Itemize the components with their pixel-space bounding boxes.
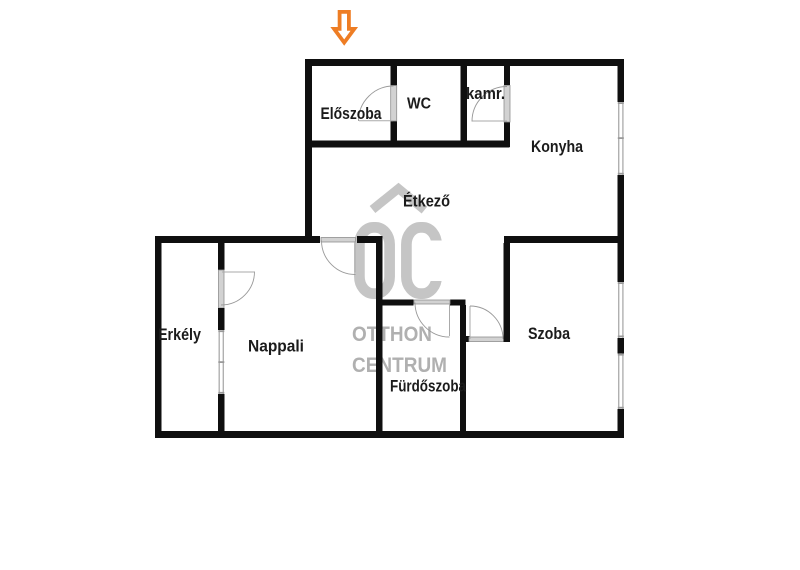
svg-text:Étkező: Étkező: [403, 192, 450, 211]
svg-text:Konyha: Konyha: [531, 137, 583, 156]
svg-text:WC: WC: [407, 96, 431, 113]
svg-text:Szoba: Szoba: [528, 324, 570, 343]
svg-text:Fürdőszoba: Fürdőszoba: [390, 377, 466, 396]
svg-text:kamr.: kamr.: [466, 85, 505, 103]
svg-text:Nappali: Nappali: [248, 338, 304, 356]
svg-text:Erkély: Erkély: [158, 326, 202, 344]
svg-text:CENTRUM: CENTRUM: [352, 353, 447, 377]
svg-text:OTTHON: OTTHON: [352, 322, 432, 346]
svg-text:Előszoba: Előszoba: [321, 104, 382, 123]
